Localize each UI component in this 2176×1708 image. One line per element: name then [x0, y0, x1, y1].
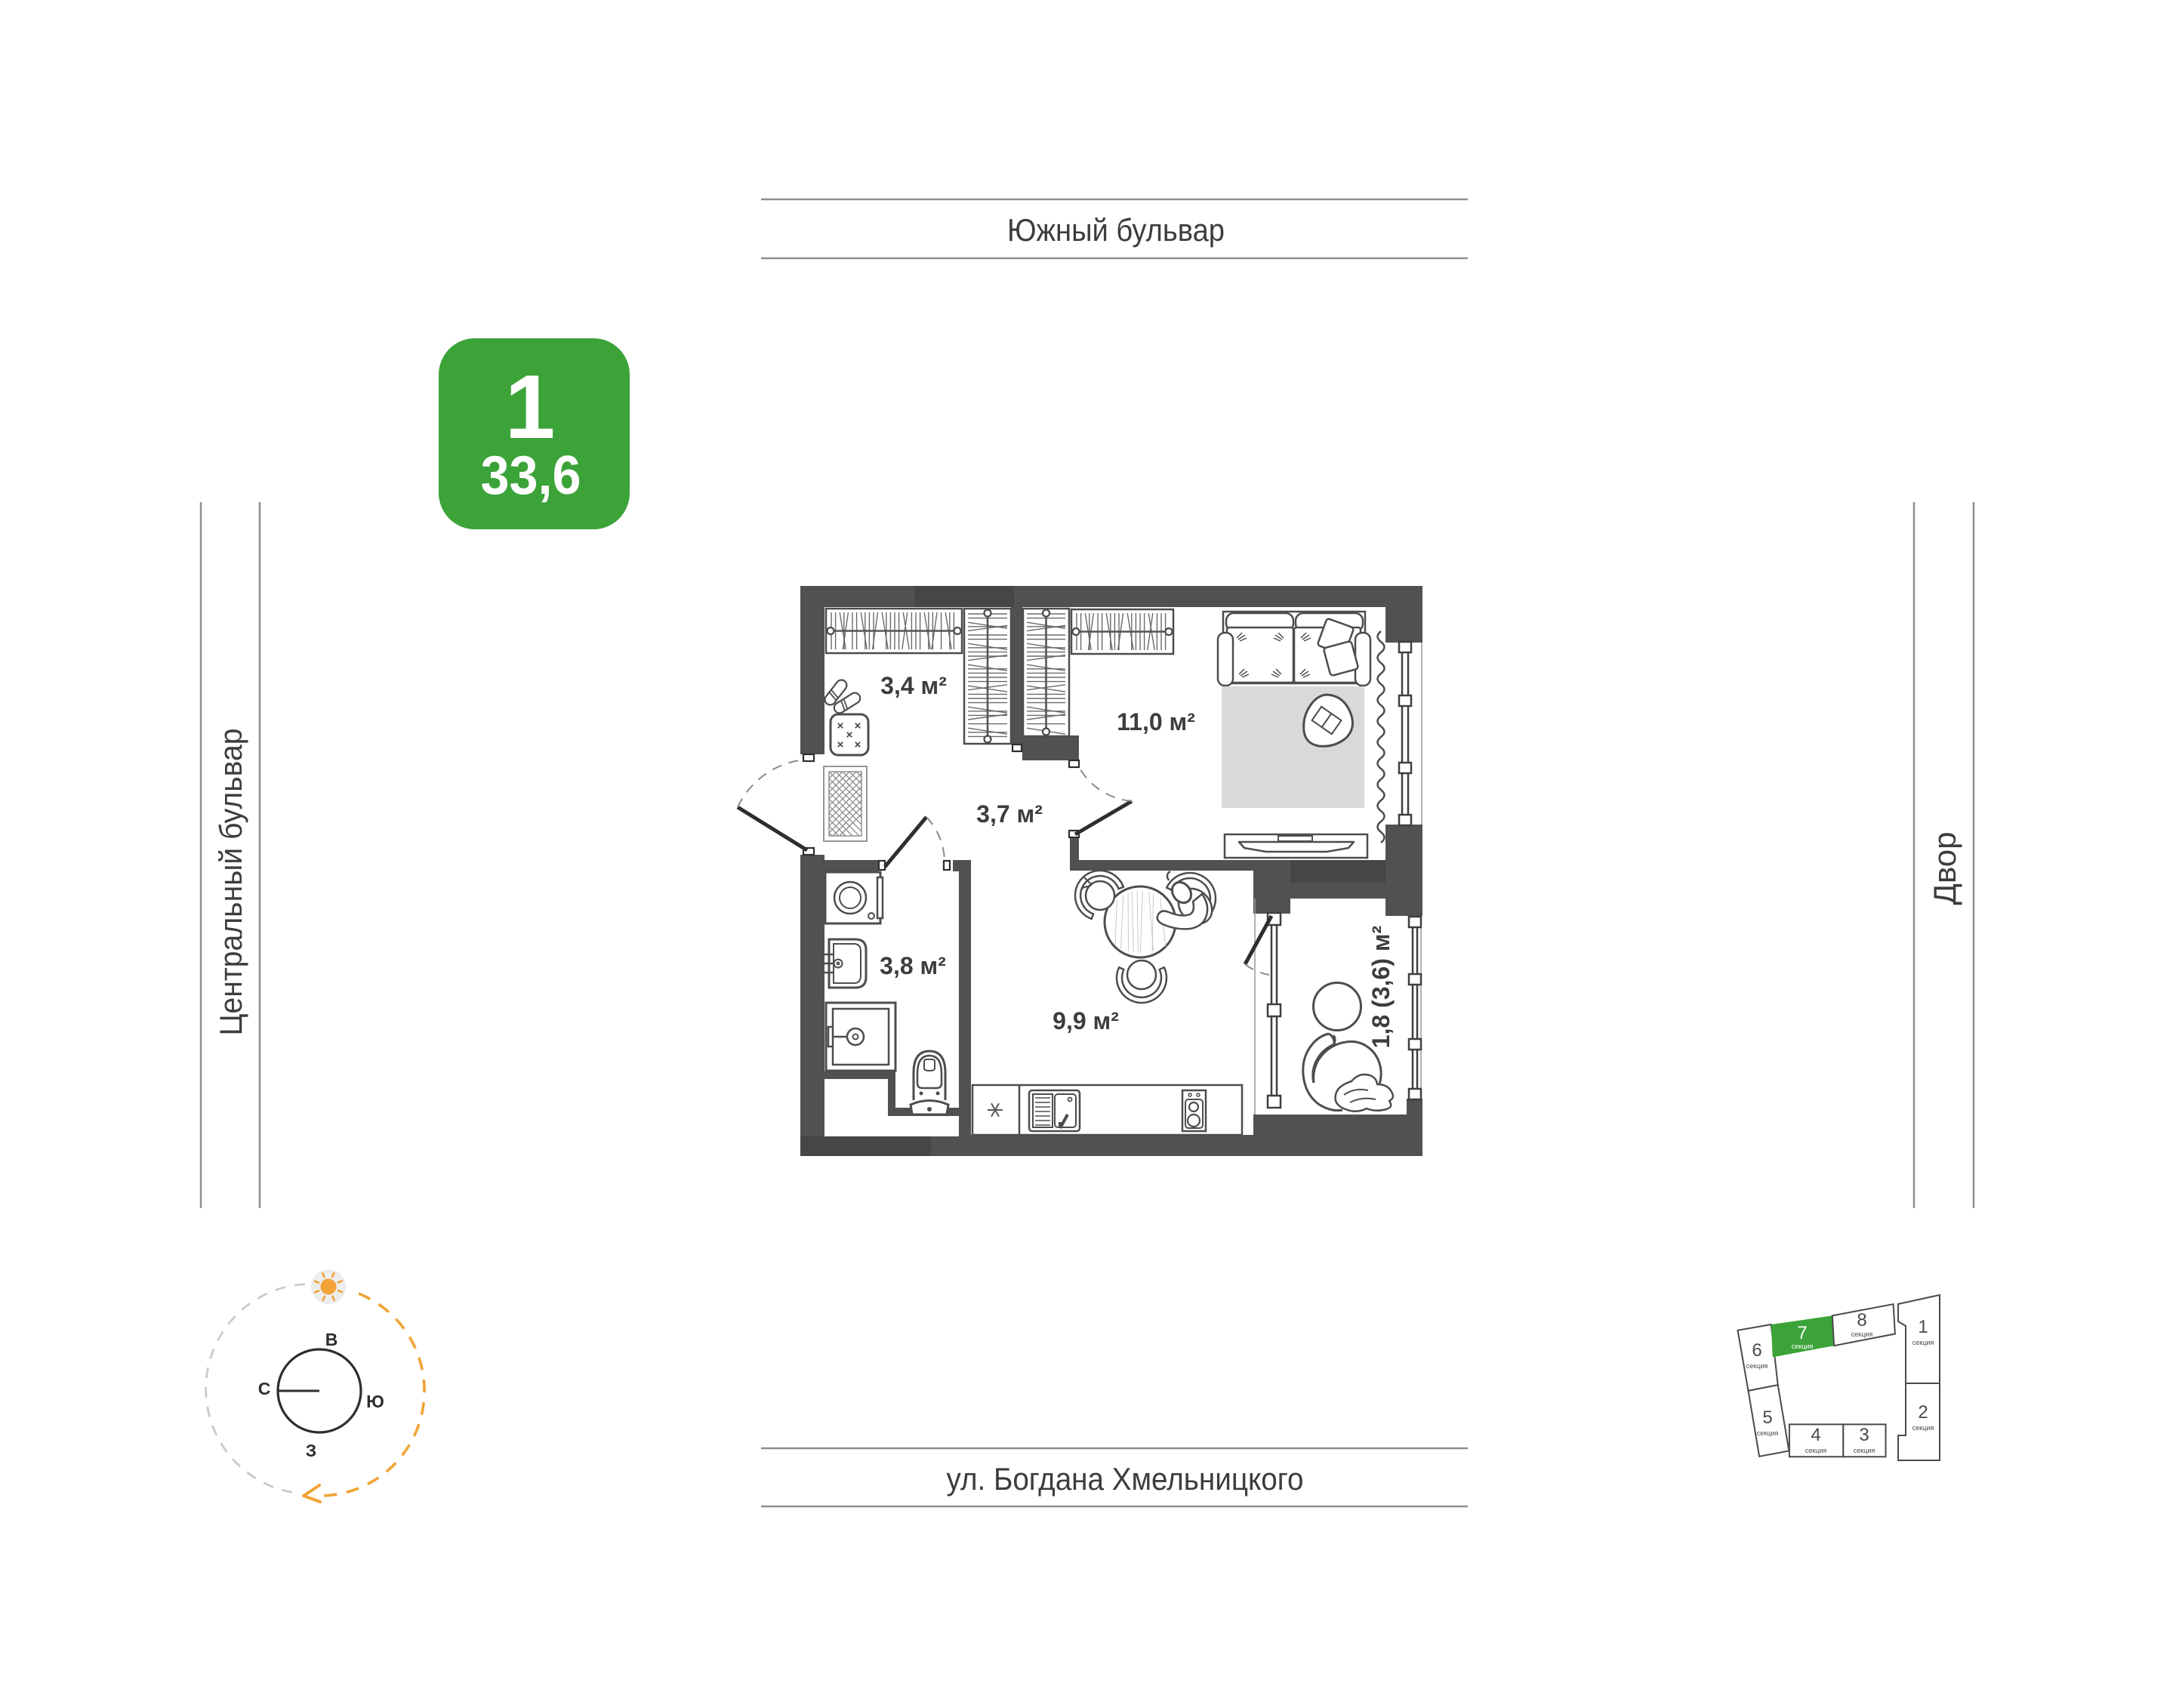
svg-text:7: 7 — [1797, 1323, 1807, 1343]
svg-text:Двор: Двор — [1927, 831, 1962, 905]
svg-text:З: З — [306, 1441, 316, 1460]
svg-text:3,8 м²: 3,8 м² — [880, 952, 946, 979]
svg-text:В: В — [325, 1330, 338, 1349]
svg-text:6: 6 — [1752, 1340, 1761, 1361]
svg-text:Центральный бульвар: Центральный бульвар — [213, 729, 248, 1036]
svg-text:1: 1 — [1918, 1317, 1928, 1337]
svg-text:ул. Богдана Хмельницкого: ул. Богдана Хмельницкого — [947, 1461, 1304, 1497]
svg-text:33,6: 33,6 — [481, 445, 581, 506]
svg-text:3,4 м²: 3,4 м² — [880, 672, 947, 699]
svg-text:Южный бульвар: Южный бульвар — [1007, 212, 1225, 248]
svg-text:секция: секция — [1757, 1429, 1779, 1437]
svg-text:2: 2 — [1918, 1402, 1928, 1423]
svg-text:Ю: Ю — [366, 1392, 384, 1411]
svg-text:секция: секция — [1792, 1343, 1814, 1350]
svg-text:секция: секция — [1746, 1362, 1768, 1370]
svg-text:4: 4 — [1811, 1425, 1820, 1445]
svg-text:3: 3 — [1859, 1425, 1869, 1445]
svg-text:5: 5 — [1762, 1407, 1772, 1428]
svg-text:С: С — [258, 1379, 271, 1398]
svg-text:9,9 м²: 9,9 м² — [1053, 1007, 1119, 1034]
svg-text:секция: секция — [1805, 1447, 1827, 1454]
svg-text:8: 8 — [1857, 1310, 1866, 1330]
svg-text:секция: секция — [1912, 1339, 1934, 1346]
svg-text:секция: секция — [1912, 1424, 1934, 1432]
svg-text:1,8 (3,6) м²: 1,8 (3,6) м² — [1367, 926, 1395, 1048]
svg-text:3,7 м²: 3,7 м² — [976, 800, 1043, 828]
svg-text:секция: секция — [1854, 1447, 1875, 1454]
svg-text:11,0 м²: 11,0 м² — [1117, 708, 1195, 735]
svg-text:секция: секция — [1851, 1330, 1873, 1338]
svg-text:1: 1 — [505, 356, 556, 458]
